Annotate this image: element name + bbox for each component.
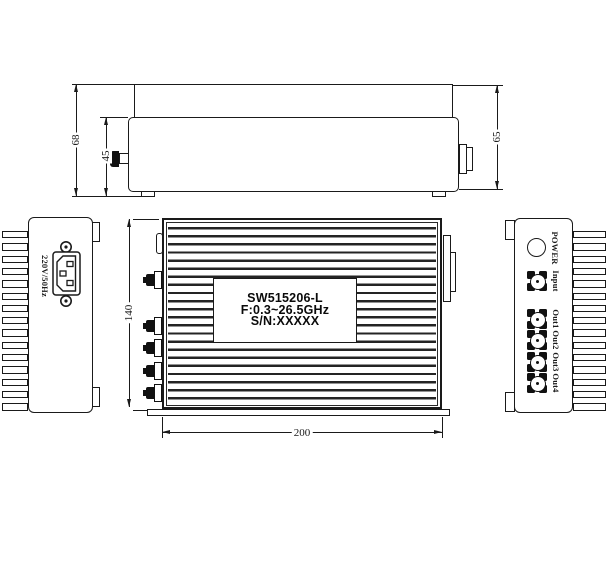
rf-connector-side-profile (143, 317, 162, 335)
rf-connector-out4 (527, 373, 547, 393)
side-view-right-tab-inner (466, 147, 473, 171)
connector-flange (154, 317, 162, 335)
connector-flange (154, 362, 162, 380)
nameplate-serial: S/N:XXXXX (251, 316, 320, 328)
port-label-input: Input (551, 270, 561, 291)
port-label-out1: Out1 (551, 309, 561, 328)
heatsink-fin (573, 280, 606, 287)
port-label-out3: Out3 (551, 352, 561, 371)
heatsink-fin (573, 354, 606, 361)
rf-connector-out2 (527, 330, 547, 350)
heatsink-fin (2, 256, 28, 263)
connector-center-pin (536, 318, 539, 321)
rf-connector-side-profile (143, 384, 162, 402)
power-inlet-icon (48, 236, 84, 312)
power-indicator-label: POWER (550, 231, 560, 264)
connector-flange (154, 384, 162, 402)
heatsink-fin (2, 293, 28, 300)
socket-voltage-label: 220V/50Hz (40, 255, 50, 297)
power-indicator-lamp (527, 238, 546, 257)
nameplate: SW515206-L F:0.3~26.5GHz S/N:XXXXX (213, 278, 357, 343)
heatsink-fin (2, 268, 28, 275)
port-label-out2: Out2 (551, 330, 561, 349)
connector-center-pin (536, 361, 539, 364)
heatsink-fin (573, 366, 606, 373)
technical-drawing-canvas: 68 45 65 (0, 0, 610, 563)
rf-connector-side-profile (143, 271, 162, 289)
rf-connector-side-profile (143, 339, 162, 357)
heatsink-fin (573, 403, 606, 410)
dim-label-140: 140 (123, 303, 135, 324)
side-connector-collar (119, 153, 129, 164)
heatsink-fin (573, 243, 606, 250)
side-view-top-cover (134, 84, 453, 118)
heatsink-fin (2, 305, 28, 312)
rf-connector-out3 (527, 352, 547, 372)
heatsink-fin (2, 379, 28, 386)
heatsink-fin (2, 354, 28, 361)
heatsink-fin (2, 280, 28, 287)
heatsink-fin (573, 293, 606, 300)
heatsink-fin (573, 379, 606, 386)
dim-label-68: 68 (70, 133, 82, 148)
heatsink-fin (573, 329, 606, 336)
heatsink-fin (2, 366, 28, 373)
heatsink-fin (573, 268, 606, 275)
heatsink-fin (573, 342, 606, 349)
heatsink-fin (2, 403, 28, 410)
side-view-body (128, 117, 459, 192)
heatsink-fin (573, 231, 606, 238)
heatsink-fin (573, 305, 606, 312)
heatsink-fin (573, 256, 606, 263)
rf-connector-side-profile (143, 362, 162, 380)
side-view-foot-left (141, 191, 155, 197)
side-view-foot-right (432, 191, 446, 197)
heatsink-fin (2, 329, 28, 336)
connector-center-pin (536, 280, 539, 283)
dim-label-45: 45 (100, 149, 112, 164)
rf-connector-input (527, 271, 547, 291)
heatsink-fin (2, 317, 28, 324)
port-label-out4: Out4 (551, 373, 561, 392)
heatsink-fin (573, 317, 606, 324)
connector-center-pin (536, 382, 539, 385)
connector-center-pin (536, 339, 539, 342)
heatsink-fin (573, 391, 606, 398)
connector-flange (154, 271, 162, 289)
front-view-right-tab-inner (450, 252, 456, 292)
heatsink-fin (2, 243, 28, 250)
heatsink-fin (2, 342, 28, 349)
front-view-base-plate (147, 409, 450, 416)
heatsink-fin (2, 391, 28, 398)
dim-label-200: 200 (292, 427, 313, 439)
rf-connector-out1 (527, 309, 547, 329)
heatsink-fin (2, 231, 28, 238)
dim-label-65: 65 (491, 130, 503, 145)
connector-flange (154, 339, 162, 357)
